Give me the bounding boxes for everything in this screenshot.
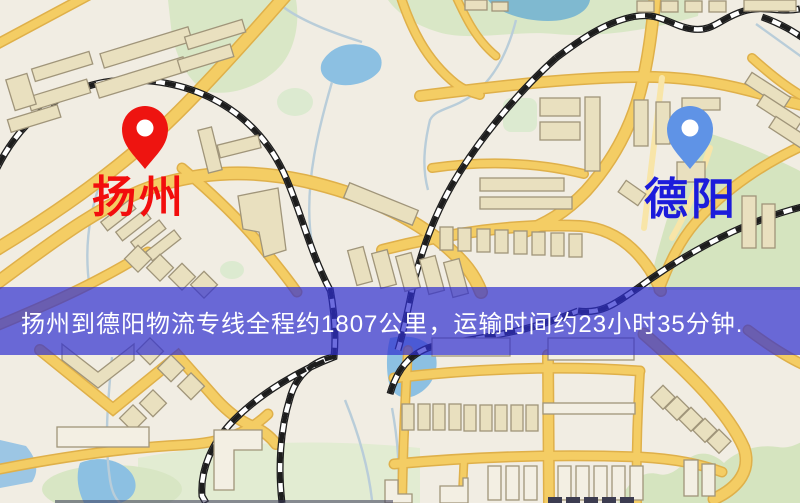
marker-label-yangzhou: 扬州: [92, 176, 186, 220]
pin-deyang-hole: [682, 120, 699, 137]
marker-label-deyang: 德阳: [644, 178, 738, 222]
route-info-banner: 扬州到德阳物流专线全程约1807公里，运输时间约23小时35分钟.: [0, 287, 800, 355]
map-art: [0, 0, 800, 503]
route-info-text: 扬州到德阳物流专线全程约1807公里，运输时间约23小时35分钟.: [0, 304, 743, 339]
pin-yangzhou-hole: [137, 120, 154, 137]
map-canvas: 扬州 德阳 扬州到德阳物流专线全程约1807公里，运输时间约23小时35分钟.: [0, 0, 800, 503]
